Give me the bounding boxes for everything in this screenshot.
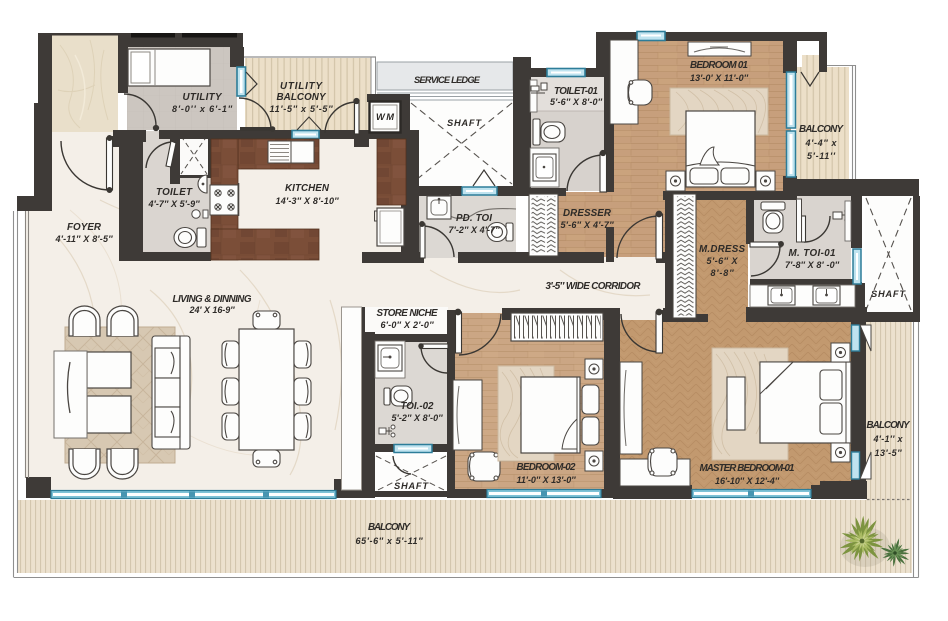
svg-text:11′-5″ x 5′-5″: 11′-5″ x 5′-5″	[270, 104, 334, 114]
svg-text:SHAFT: SHAFT	[447, 118, 482, 128]
svg-text:65′-6″ x 5′-11″: 65′-6″ x 5′-11″	[356, 536, 424, 546]
svg-text:5′-6″ X 4′-7″: 5′-6″ X 4′-7″	[561, 220, 615, 230]
svg-text:BEDROOM-02: BEDROOM-02	[517, 462, 577, 473]
svg-text:MASTER BEDROOM-01: MASTER BEDROOM-01	[700, 463, 795, 474]
svg-text:TOILET-01: TOILET-01	[554, 86, 598, 97]
svg-text:4′-11″ X 8′-5″: 4′-11″ X 8′-5″	[55, 234, 114, 244]
svg-text:PD. TOI: PD. TOI	[456, 213, 492, 224]
svg-text:7′-8″ X 8′ -0″: 7′-8″ X 8′ -0″	[785, 260, 840, 270]
svg-text:UTILITY: UTILITY	[183, 92, 223, 103]
svg-text:5′-2″ X 8′-0″: 5′-2″ X 8′-0″	[392, 413, 444, 423]
svg-text:SERVICE LEDGE: SERVICE LEDGE	[414, 75, 481, 85]
svg-text:STORE NICHE: STORE NICHE	[377, 308, 438, 319]
svg-text:5′-6″ X: 5′-6″ X	[707, 256, 739, 266]
svg-text:BALCONY: BALCONY	[368, 522, 411, 533]
svg-text:16′-10″ X 12′-4″: 16′-10″ X 12′-4″	[715, 476, 780, 486]
svg-text:4′-4″ x: 4′-4″ x	[805, 138, 838, 148]
svg-text:M.DRESS: M.DRESS	[699, 244, 745, 255]
svg-text:LIVING & DINNING: LIVING & DINNING	[173, 294, 252, 305]
svg-text:8′-8″: 8′-8″	[711, 268, 735, 278]
svg-text:SHAFT: SHAFT	[871, 289, 906, 299]
svg-text:8′-0′′ x 6′-1″: 8′-0′′ x 6′-1″	[172, 104, 233, 114]
svg-text:M. TOI-01: M. TOI-01	[789, 248, 836, 259]
svg-text:5′-11′′: 5′-11′′	[807, 151, 836, 161]
svg-text:UTILITY: UTILITY	[280, 81, 323, 92]
svg-text:SHAFT: SHAFT	[394, 481, 429, 491]
svg-text:4′-1′′ x: 4′-1′′ x	[873, 434, 904, 444]
svg-text:14′-3″ X 8′-10″: 14′-3″ X 8′-10″	[276, 196, 340, 206]
svg-text:KITCHEN: KITCHEN	[285, 183, 330, 194]
svg-text:BALCONY: BALCONY	[277, 92, 327, 103]
svg-text:FOYER: FOYER	[67, 222, 102, 233]
svg-text:13′-5″: 13′-5″	[875, 448, 903, 458]
svg-text:11′-0″ X 13′-0″: 11′-0″ X 13′-0″	[517, 475, 577, 485]
svg-text:BALCONY: BALCONY	[799, 124, 844, 135]
svg-text:7′-2″ X 4′-7″: 7′-2″ X 4′-7″	[449, 225, 501, 235]
svg-text:13′-0′ X 11′-0″: 13′-0′ X 11′-0″	[690, 73, 749, 83]
svg-text:3′-5″ WIDE CORRIDOR: 3′-5″ WIDE CORRIDOR	[546, 281, 642, 292]
svg-text:24′ X 16-9″: 24′ X 16-9″	[189, 305, 236, 315]
svg-text:5′-6″ X 8′-0″: 5′-6″ X 8′-0″	[550, 97, 603, 107]
svg-text:BALCONY: BALCONY	[867, 420, 911, 431]
svg-text:TOILET: TOILET	[156, 187, 193, 198]
svg-text:TOI.-02: TOI.-02	[401, 401, 435, 412]
svg-text:4′-7″ X 5′-9″: 4′-7″ X 5′-9″	[148, 199, 201, 209]
svg-text:6′-0″ X 2′-0″: 6′-0″ X 2′-0″	[381, 320, 435, 330]
svg-text:BEDROOM 01: BEDROOM 01	[690, 60, 748, 71]
svg-text:DRESSER: DRESSER	[563, 208, 612, 219]
